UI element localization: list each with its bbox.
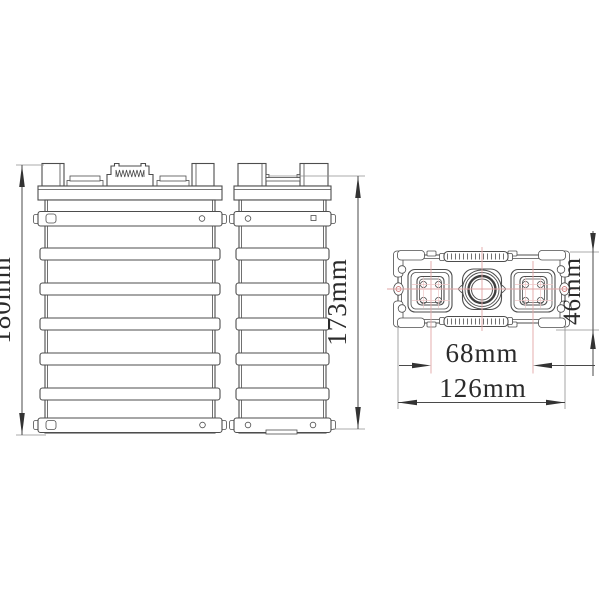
dim-label-top-depth: 46mm [559,257,586,325]
dim-label-terminal-spacing: 68mm [445,338,518,368]
front-top-cap [38,164,222,201]
dimension-front-height: 180mm [0,165,46,435]
front-mount-band-bottom [34,418,227,433]
dim-label-side-height: 173mm [322,258,352,346]
technical-drawing-canvas: 180mm 173mm 46mm 68mm 126mm [0,0,600,600]
front-mount-band-top [34,212,227,227]
side-top-cap [234,164,331,201]
side-mount-band-top [230,212,336,227]
vent-strip-top [440,252,513,262]
dimension-terminal-spacing: 68mm [399,338,595,368]
side-view [230,164,336,435]
terminal-left [408,270,452,313]
dim-label-front-height: 180mm [0,256,16,344]
vent-strip-bottom [440,317,513,327]
drawing-svg: 180mm 173mm 46mm 68mm 126mm [0,0,600,600]
side-mount-band-bottom [230,418,336,434]
front-view [34,164,227,434]
front-vent-cover [107,164,153,187]
dim-label-overall-width: 126mm [439,373,527,403]
